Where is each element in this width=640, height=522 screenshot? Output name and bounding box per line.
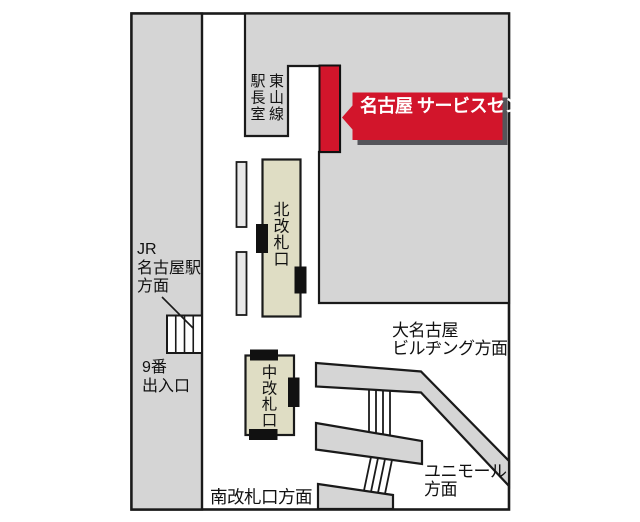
middle-gate-machine-top (250, 350, 278, 361)
jr-line2: 名古屋駅 (137, 260, 201, 279)
exit9-label: 9番 出入口 (142, 359, 190, 396)
unimall-line2: 方面 (424, 481, 507, 499)
middle-gate-label: 中改札口 (261, 364, 279, 428)
service-center-callout: 名古屋 サービスセンター (360, 96, 557, 118)
higashiyama-line-text: 東山線 (266, 73, 285, 123)
exit9-line1: 9番 (142, 359, 190, 378)
map-canvas (0, 0, 640, 522)
jr-line1: JR (137, 241, 201, 260)
callout-line2: サービスセンター (417, 96, 557, 116)
middle-gate-machine-right (288, 378, 300, 408)
exit9-line2: 出入口 (142, 378, 190, 397)
north-gate-machine-right (295, 267, 307, 294)
dai-nagoya-line1: 大名古屋 (392, 322, 508, 340)
corridor-bottom-band (318, 484, 393, 509)
pillar-top (237, 162, 247, 227)
jr-nagoya-direction-label: JR 名古屋駅 方面 (137, 241, 201, 297)
pillar-bottom (237, 252, 247, 315)
unimall-direction-label: ユニモール 方面 (424, 463, 507, 499)
south-gate-direction-label: 南改札口方面 (210, 488, 312, 506)
jr-line3: 方面 (137, 278, 201, 297)
station-map: 名古屋 サービスセンター 東山線 駅長室 北改札口 中改札口 JR 名古屋駅 方… (0, 0, 640, 522)
service-center-marker (320, 66, 341, 153)
dai-nagoya-line2: ビルヂング方面 (392, 340, 508, 358)
north-gate-label: 北改札口 (273, 201, 291, 267)
station-master-room-text: 駅長室 (247, 73, 266, 123)
stairs-upper-icon (369, 390, 390, 436)
unimall-line1: ユニモール (424, 463, 507, 481)
dai-nagoya-building-label: 大名古屋 ビルヂング方面 (392, 322, 508, 358)
callout-line1: 名古屋 (360, 96, 413, 116)
station-master-label: 東山線 駅長室 (247, 73, 284, 123)
middle-gate-machine-bottom (249, 429, 278, 440)
stairs-lower-icon (364, 457, 392, 494)
